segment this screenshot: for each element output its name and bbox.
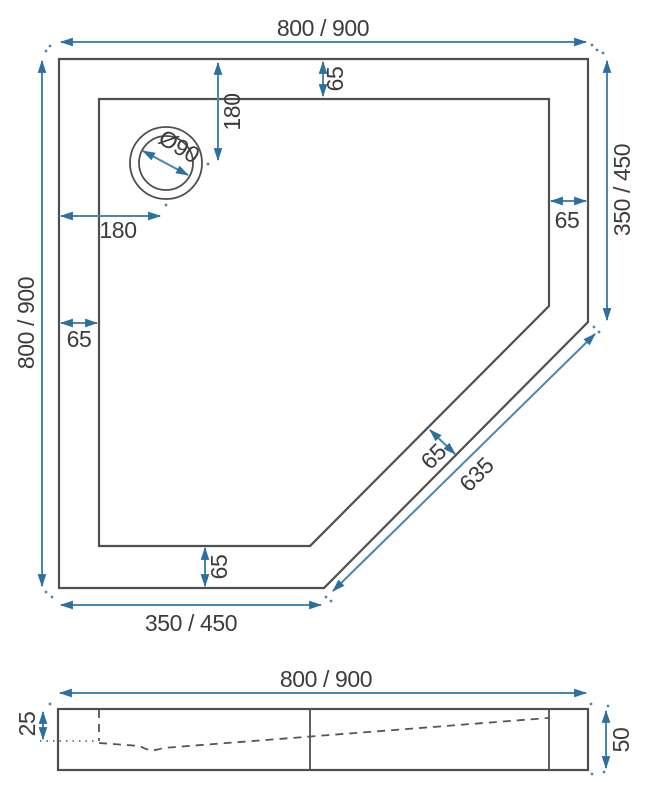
dim-left-rim: 65 [61, 323, 97, 352]
dimension-label: 65 [67, 326, 92, 352]
dim-right-rim: 65 [551, 201, 586, 233]
dim-bottom-rim: 65 [205, 548, 232, 586]
dimension-label: 50 [608, 728, 634, 753]
shower-tray-drawing: 800 / 900 800 / 900 65 180 180 Ø90 [0, 0, 649, 800]
dimension-label: 800 / 900 [277, 15, 369, 41]
side-view: 800 / 900 25 50 [14, 666, 634, 770]
dimension-label: 800 / 900 [280, 666, 372, 692]
dimension-label: 180 [219, 93, 245, 130]
side-outline [58, 709, 588, 770]
dimension-label: 65 [555, 207, 580, 233]
dim-bottom-edge: 350 / 450 [61, 605, 321, 636]
dim-drain-diameter: Ø90 [143, 124, 204, 175]
dimension-label: 800 / 900 [13, 277, 39, 369]
dim-side-depth: 25 [14, 712, 43, 739]
dim-diagonal-rim: 65 [415, 430, 455, 474]
outer-outline [59, 59, 588, 588]
dimension-line [333, 334, 595, 591]
dim-drain-vertical-offset: 180 [218, 63, 245, 160]
side-floor-slope [99, 718, 548, 750]
dimension-label: 635 [454, 452, 499, 497]
dim-drain-horizontal-offset: 180 [61, 216, 160, 243]
dim-side-width: 800 / 900 [60, 666, 586, 693]
dim-top-rim: 65 [322, 62, 348, 96]
dimension-label: 350 / 450 [145, 610, 237, 636]
dim-diagonal-edge: 635 [333, 334, 595, 591]
dim-left-height: 800 / 900 [13, 61, 42, 586]
dimension-label: 65 [206, 555, 232, 580]
top-view: 800 / 900 800 / 900 65 180 180 Ø90 [13, 15, 635, 636]
technical-drawing-page: 800 / 900 800 / 900 65 180 180 Ø90 [0, 0, 649, 800]
dimension-label: 350 / 450 [609, 144, 635, 236]
dim-side-height: 50 [606, 711, 634, 768]
dim-right-edge: 350 / 450 [607, 61, 635, 320]
dimension-label: 180 [99, 217, 136, 243]
dim-top-width: 800 / 900 [61, 15, 586, 42]
dimension-label: 25 [14, 712, 40, 737]
dimension-label: 65 [322, 67, 348, 92]
dimension-label: 65 [415, 438, 451, 474]
